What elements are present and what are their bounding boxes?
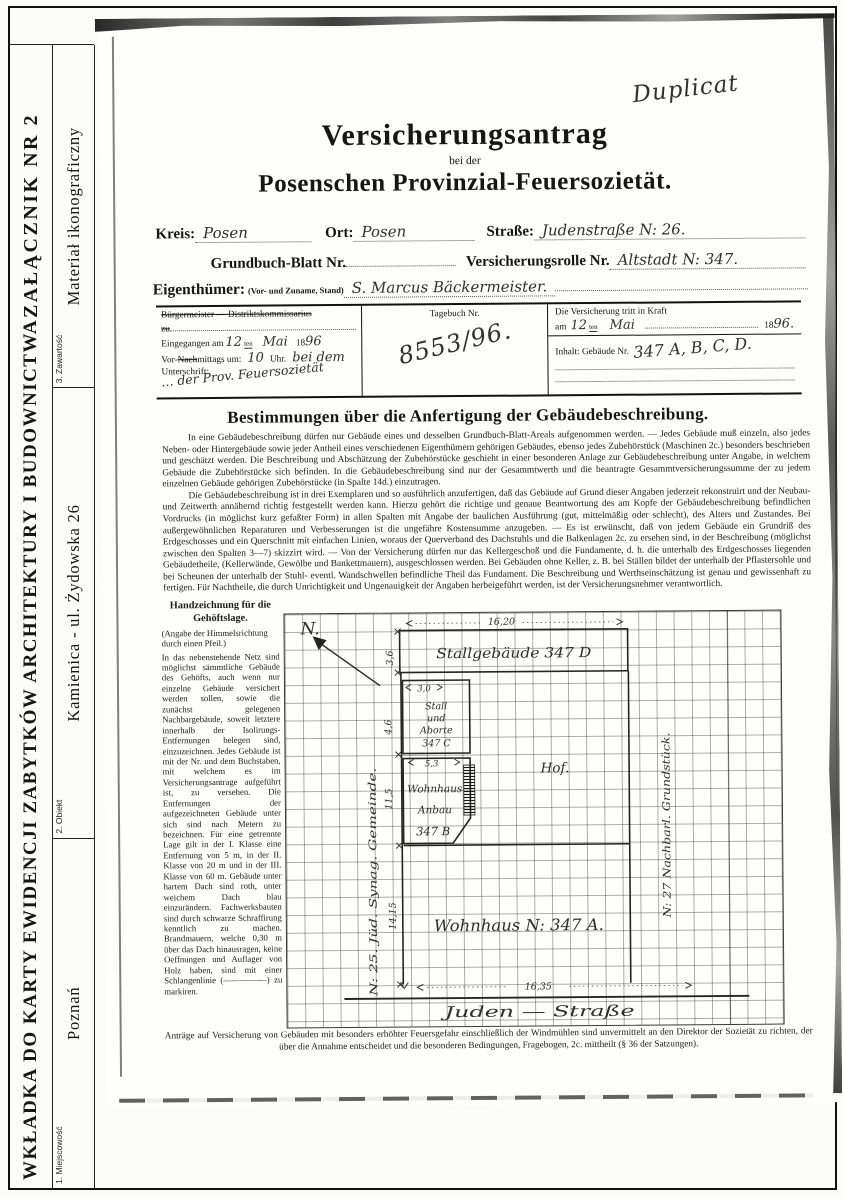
owner-sublabel: (Vor- und Zuname, Stand) bbox=[248, 285, 344, 296]
street-line bbox=[344, 996, 749, 999]
dim-annex-width: 5,3 bbox=[425, 759, 439, 769]
form-title: Versicherungsantrag bbox=[195, 116, 735, 154]
dim-leader bbox=[522, 622, 613, 623]
archive-sidebar: WKŁADKA DO KARTY EWIDENCJI ZABYTKÓW ARCH… bbox=[10, 45, 94, 1188]
rotated-card-strip: WKŁADKA DO KARTY EWIDENCJI ZABYTKÓW ARCH… bbox=[10, 44, 94, 1188]
card-cell-zawartosc: 3. Zawartość Materiał ikonograficzny bbox=[53, 45, 94, 388]
courtyard-label: Hof. bbox=[540, 760, 570, 776]
scan-edge-bottom bbox=[119, 1093, 813, 1102]
rules-heading: Bestimmungen über die Anfertigung der Ge… bbox=[102, 403, 834, 429]
field-value: Poznań bbox=[64, 987, 84, 1040]
authority-line: Bürgermeister — Distriktskommissarius bbox=[161, 309, 356, 321]
grundbuch-label: Grundbuch-Blatt Nr. bbox=[211, 255, 346, 273]
street-label: Juden — Straße bbox=[440, 1002, 635, 1022]
field-value: Kamienica - ul. Żydowska 26 bbox=[64, 504, 84, 721]
received-label: Eingegangen am bbox=[161, 339, 223, 349]
effective-am: am bbox=[555, 322, 566, 332]
effective-date-line: am 12 ten Mai 18 96. bbox=[555, 316, 794, 333]
rolle-value: Altstadt N: 347. bbox=[609, 249, 805, 270]
strasse-label: Straße: bbox=[486, 223, 534, 240]
received-year: 96 bbox=[305, 334, 322, 349]
sketch-heading: Handzeichnung für die Gehöftslage. bbox=[161, 599, 279, 626]
card-title-row: WKŁADKA DO KARTY EWIDENCJI ZABYTKÓW ARCH… bbox=[10, 45, 53, 1188]
card-title: WKŁADKA DO KARTY EWIDENCJI ZABYTKÓW ARCH… bbox=[20, 319, 42, 1188]
dim-shed-width: 3,0 bbox=[417, 684, 431, 694]
rules-paragraph-2: Die Gebäudebeschreibung ist in drei Exem… bbox=[162, 486, 811, 595]
north-arrow-icon bbox=[319, 642, 380, 686]
time-line: Vor-Nachmittags um: 10 Uhr. bei dem bbox=[161, 350, 356, 367]
annex-label-line1: Wohnhaus bbox=[407, 783, 463, 795]
sketch-note: (Angabe der Himmelsrichtung durch einen … bbox=[162, 627, 280, 649]
dim-shed-height: 4,6 bbox=[383, 719, 394, 735]
form-title-block: Versicherungsantrag bei der Posenschen P… bbox=[195, 116, 736, 199]
sketch-instructions: Handzeichnung für die Gehöftslage. (Anga… bbox=[161, 599, 282, 996]
authority-line2: zu bbox=[161, 324, 170, 334]
effective-day: 12 bbox=[570, 318, 587, 333]
site-plan-drawing: N. Stallgebäude 347 D 16,20 3,6 bbox=[284, 611, 783, 1028]
shed-label-line4: 347 C bbox=[422, 738, 451, 749]
time-label-strike: Nach bbox=[178, 355, 198, 365]
dim-leader bbox=[569, 985, 682, 986]
dim-arrow-right bbox=[437, 684, 442, 690]
field-label: 2. Obiekt bbox=[54, 800, 64, 834]
scan-edge-right bbox=[819, 17, 842, 1093]
dim-leader bbox=[427, 987, 507, 988]
dotted-row bbox=[556, 368, 795, 382]
owner-value: S. Marcus Bäckermeister. bbox=[344, 277, 556, 298]
field-label: 1. Miejscowość bbox=[54, 1126, 64, 1184]
received-month: Mai bbox=[263, 334, 288, 349]
sketch-body-text: In das nebenstehende Netz sind möglichst… bbox=[162, 651, 283, 996]
card-annex-label: ZAŁĄCZNIK NR 2 bbox=[20, 113, 43, 318]
office-receipt-cell: Bürgermeister — Distriktskommissarius zu… bbox=[156, 306, 362, 398]
effective-label: Die Versicherung tritt in Kraft bbox=[555, 305, 794, 317]
right-neighbor-label: N: 27 Nachbarl. Grundstück. bbox=[660, 732, 673, 918]
strasse-value: Judenstraße N: 26. bbox=[534, 219, 806, 240]
content-label: Inhalt: Gebäude Nr. bbox=[555, 347, 629, 358]
dim-top-value: 16,20 bbox=[488, 617, 515, 628]
duplicate-annotation: Duplicat bbox=[631, 70, 740, 108]
content-line: Inhalt: Gebäude Nr. 347 A, B, C, D. bbox=[555, 337, 794, 358]
received-day: 12 bbox=[225, 335, 242, 350]
dim-bottom-value: 16,35 bbox=[525, 981, 552, 992]
left-neighbor-label: N: 25. Jüd. Synag. Gemeinde. bbox=[367, 768, 381, 998]
grundbuch-value-blank bbox=[346, 251, 456, 267]
cell-divider-rule bbox=[548, 333, 801, 336]
dim-house-height: 14,15 bbox=[388, 902, 399, 929]
scan-edge-top bbox=[95, 13, 835, 32]
scanned-document: Duplicat Versicherungsantrag bei der Pos… bbox=[99, 15, 840, 1108]
annex-label-line2: Anbau bbox=[417, 804, 452, 816]
effective-year: 96. bbox=[773, 316, 794, 331]
effective-suffix: ten bbox=[589, 323, 598, 332]
shed-label-line2: und bbox=[427, 713, 445, 724]
shed-label-line3: Aborte bbox=[419, 725, 453, 736]
right-boundary-line bbox=[628, 671, 630, 983]
dim-annex-height: 11,5 bbox=[384, 788, 395, 809]
dim-arrow-right bbox=[616, 619, 622, 625]
dim-arrow-left bbox=[406, 620, 412, 626]
shed-label-line1: Stall bbox=[425, 701, 447, 712]
kreis-value: Posen bbox=[195, 223, 311, 243]
ort-value: Posen bbox=[353, 222, 474, 242]
effective-dotted bbox=[645, 318, 758, 329]
dim-leader bbox=[415, 623, 480, 624]
house-label: Wohnhaus N: 347 A. bbox=[434, 915, 604, 935]
scan-edge-left bbox=[112, 37, 122, 1077]
field-row-register: Grundbuch-Blatt Nr. Versicherungsrolle N… bbox=[156, 248, 806, 273]
dim-arrow-left bbox=[406, 684, 411, 690]
year-prefix: 18 bbox=[296, 338, 305, 348]
rules-paragraph-1: In eine Gebäudebeschreibung dürfen nur G… bbox=[162, 428, 810, 491]
field-label: 3. Zawartość bbox=[54, 335, 64, 384]
time-label-pre: Vor- bbox=[161, 355, 177, 365]
effective-year-prefix: 18 bbox=[764, 321, 773, 331]
ruled-gridline bbox=[727, 611, 730, 1024]
effective-month: Mai bbox=[610, 318, 635, 333]
journal-number: 8553/96. bbox=[395, 316, 514, 370]
dim-arrow-right bbox=[455, 759, 460, 765]
kreis-label: Kreis: bbox=[155, 226, 195, 243]
annex-firewall-hatching bbox=[464, 765, 475, 815]
dim-stable-height: 3,6 bbox=[385, 650, 396, 665]
form-footnote: Anträge auf Versicherung von Gebäuden mi… bbox=[165, 1025, 813, 1054]
received-line: Eingegangen am 12 ten Mai 18 96 bbox=[161, 334, 356, 351]
field-value: Materiał ikonograficzny bbox=[64, 127, 84, 305]
time-label-post: mittags um: bbox=[197, 355, 241, 365]
stable-building-label: Stallgebäude 347 D bbox=[436, 645, 591, 662]
archive-card-page: WKŁADKA DO KARTY EWIDENCJI ZABYTKÓW ARCH… bbox=[0, 0, 843, 1198]
card-cell-miejscowosc: 1. Miejscowość Poznań bbox=[53, 839, 94, 1188]
card-field-row: 1. Miejscowość Poznań 2. Obiekt Kamienic… bbox=[53, 45, 95, 1188]
site-plan-grid: N. Stallgebäude 347 D 16,20 3,6 bbox=[283, 610, 784, 1029]
rules-text: In eine Gebäudebeschreibung dürfen nur G… bbox=[162, 428, 811, 595]
field-row-location: Kreis: Posen Ort: Posen Straße: Judenstr… bbox=[155, 219, 805, 243]
field-row-owner: Eigenthümer: (Vor- und Zuname, Stand) S.… bbox=[153, 274, 808, 299]
organization-name: Posenschen Provinzial-Feuersozietät. bbox=[195, 167, 735, 199]
north-arrowhead bbox=[313, 636, 327, 650]
authority-dotted bbox=[170, 320, 356, 331]
dim-arrow-left bbox=[409, 759, 414, 765]
office-table: Bürgermeister — Distriktskommissarius zu… bbox=[156, 300, 802, 399]
annex-label-line3: 347 B bbox=[416, 824, 450, 838]
card-cell-obiekt: 2. Obiekt Kamienica - ul. Żydowska 26 bbox=[53, 388, 94, 838]
ort-label: Ort: bbox=[325, 225, 353, 242]
north-label: N. bbox=[299, 619, 319, 639]
journal-cell: Tagebuch Nr. 8553/96. bbox=[361, 304, 548, 395]
dim-arrow-left bbox=[417, 984, 423, 990]
owner-label: Eigenthümer: bbox=[153, 281, 245, 300]
effective-cell: Die Versicherung tritt in Kraft am 12 te… bbox=[547, 302, 802, 394]
received-suffix: ten bbox=[244, 340, 253, 349]
time-value: 10 bbox=[247, 351, 264, 366]
dim-arrow-right bbox=[685, 982, 691, 988]
owner-dotted-line bbox=[555, 274, 808, 291]
rolle-label: Versicherungsrolle Nr. bbox=[466, 253, 610, 271]
journal-label: Tagebuch Nr. bbox=[362, 308, 547, 319]
